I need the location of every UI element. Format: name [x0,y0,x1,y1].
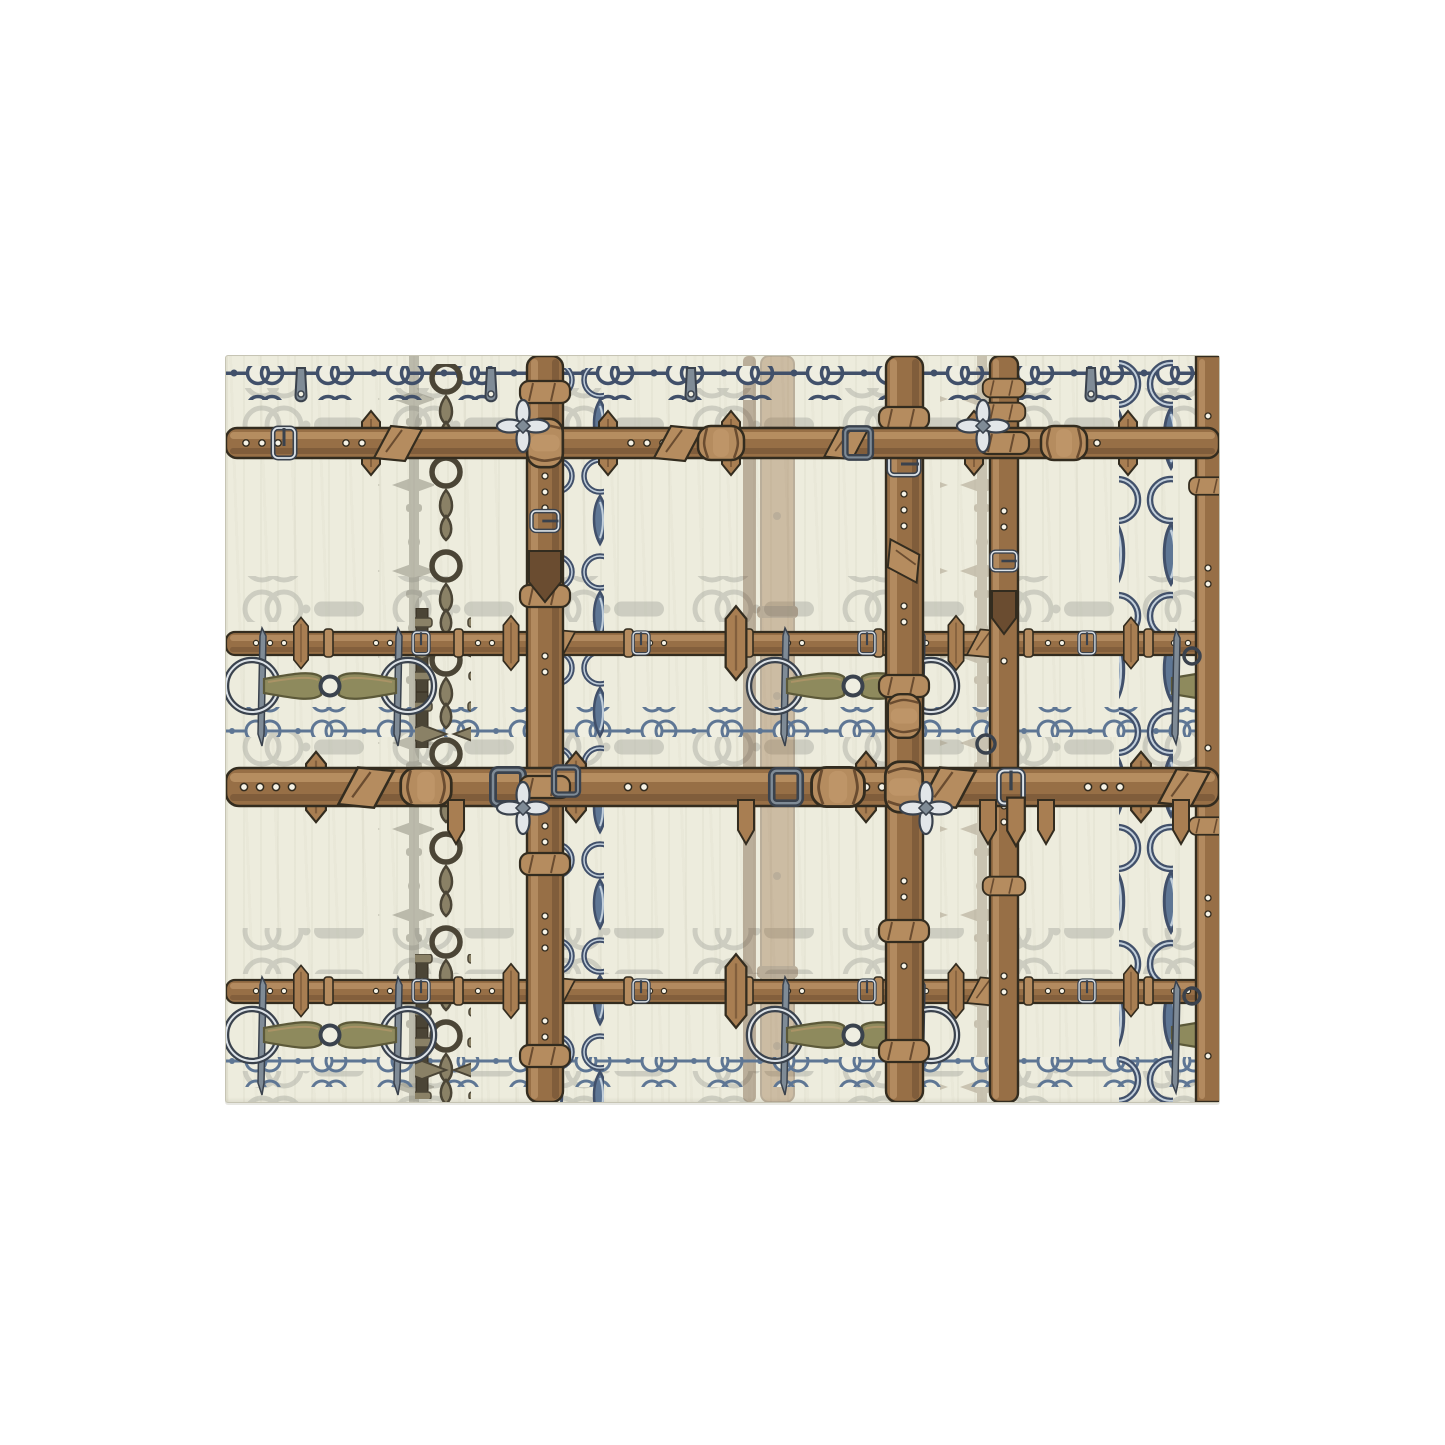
blue-ring-chain-row-mid [226,707,1219,737]
rug-product-image [225,355,1220,1103]
vertical-belt-mid-right [879,356,929,1102]
product-photo [0,0,1445,1445]
rug-pattern-art [226,356,1219,1102]
navy-chain-row-top [226,366,1219,401]
blue-ring-chain-row-bottom [226,1057,1219,1087]
